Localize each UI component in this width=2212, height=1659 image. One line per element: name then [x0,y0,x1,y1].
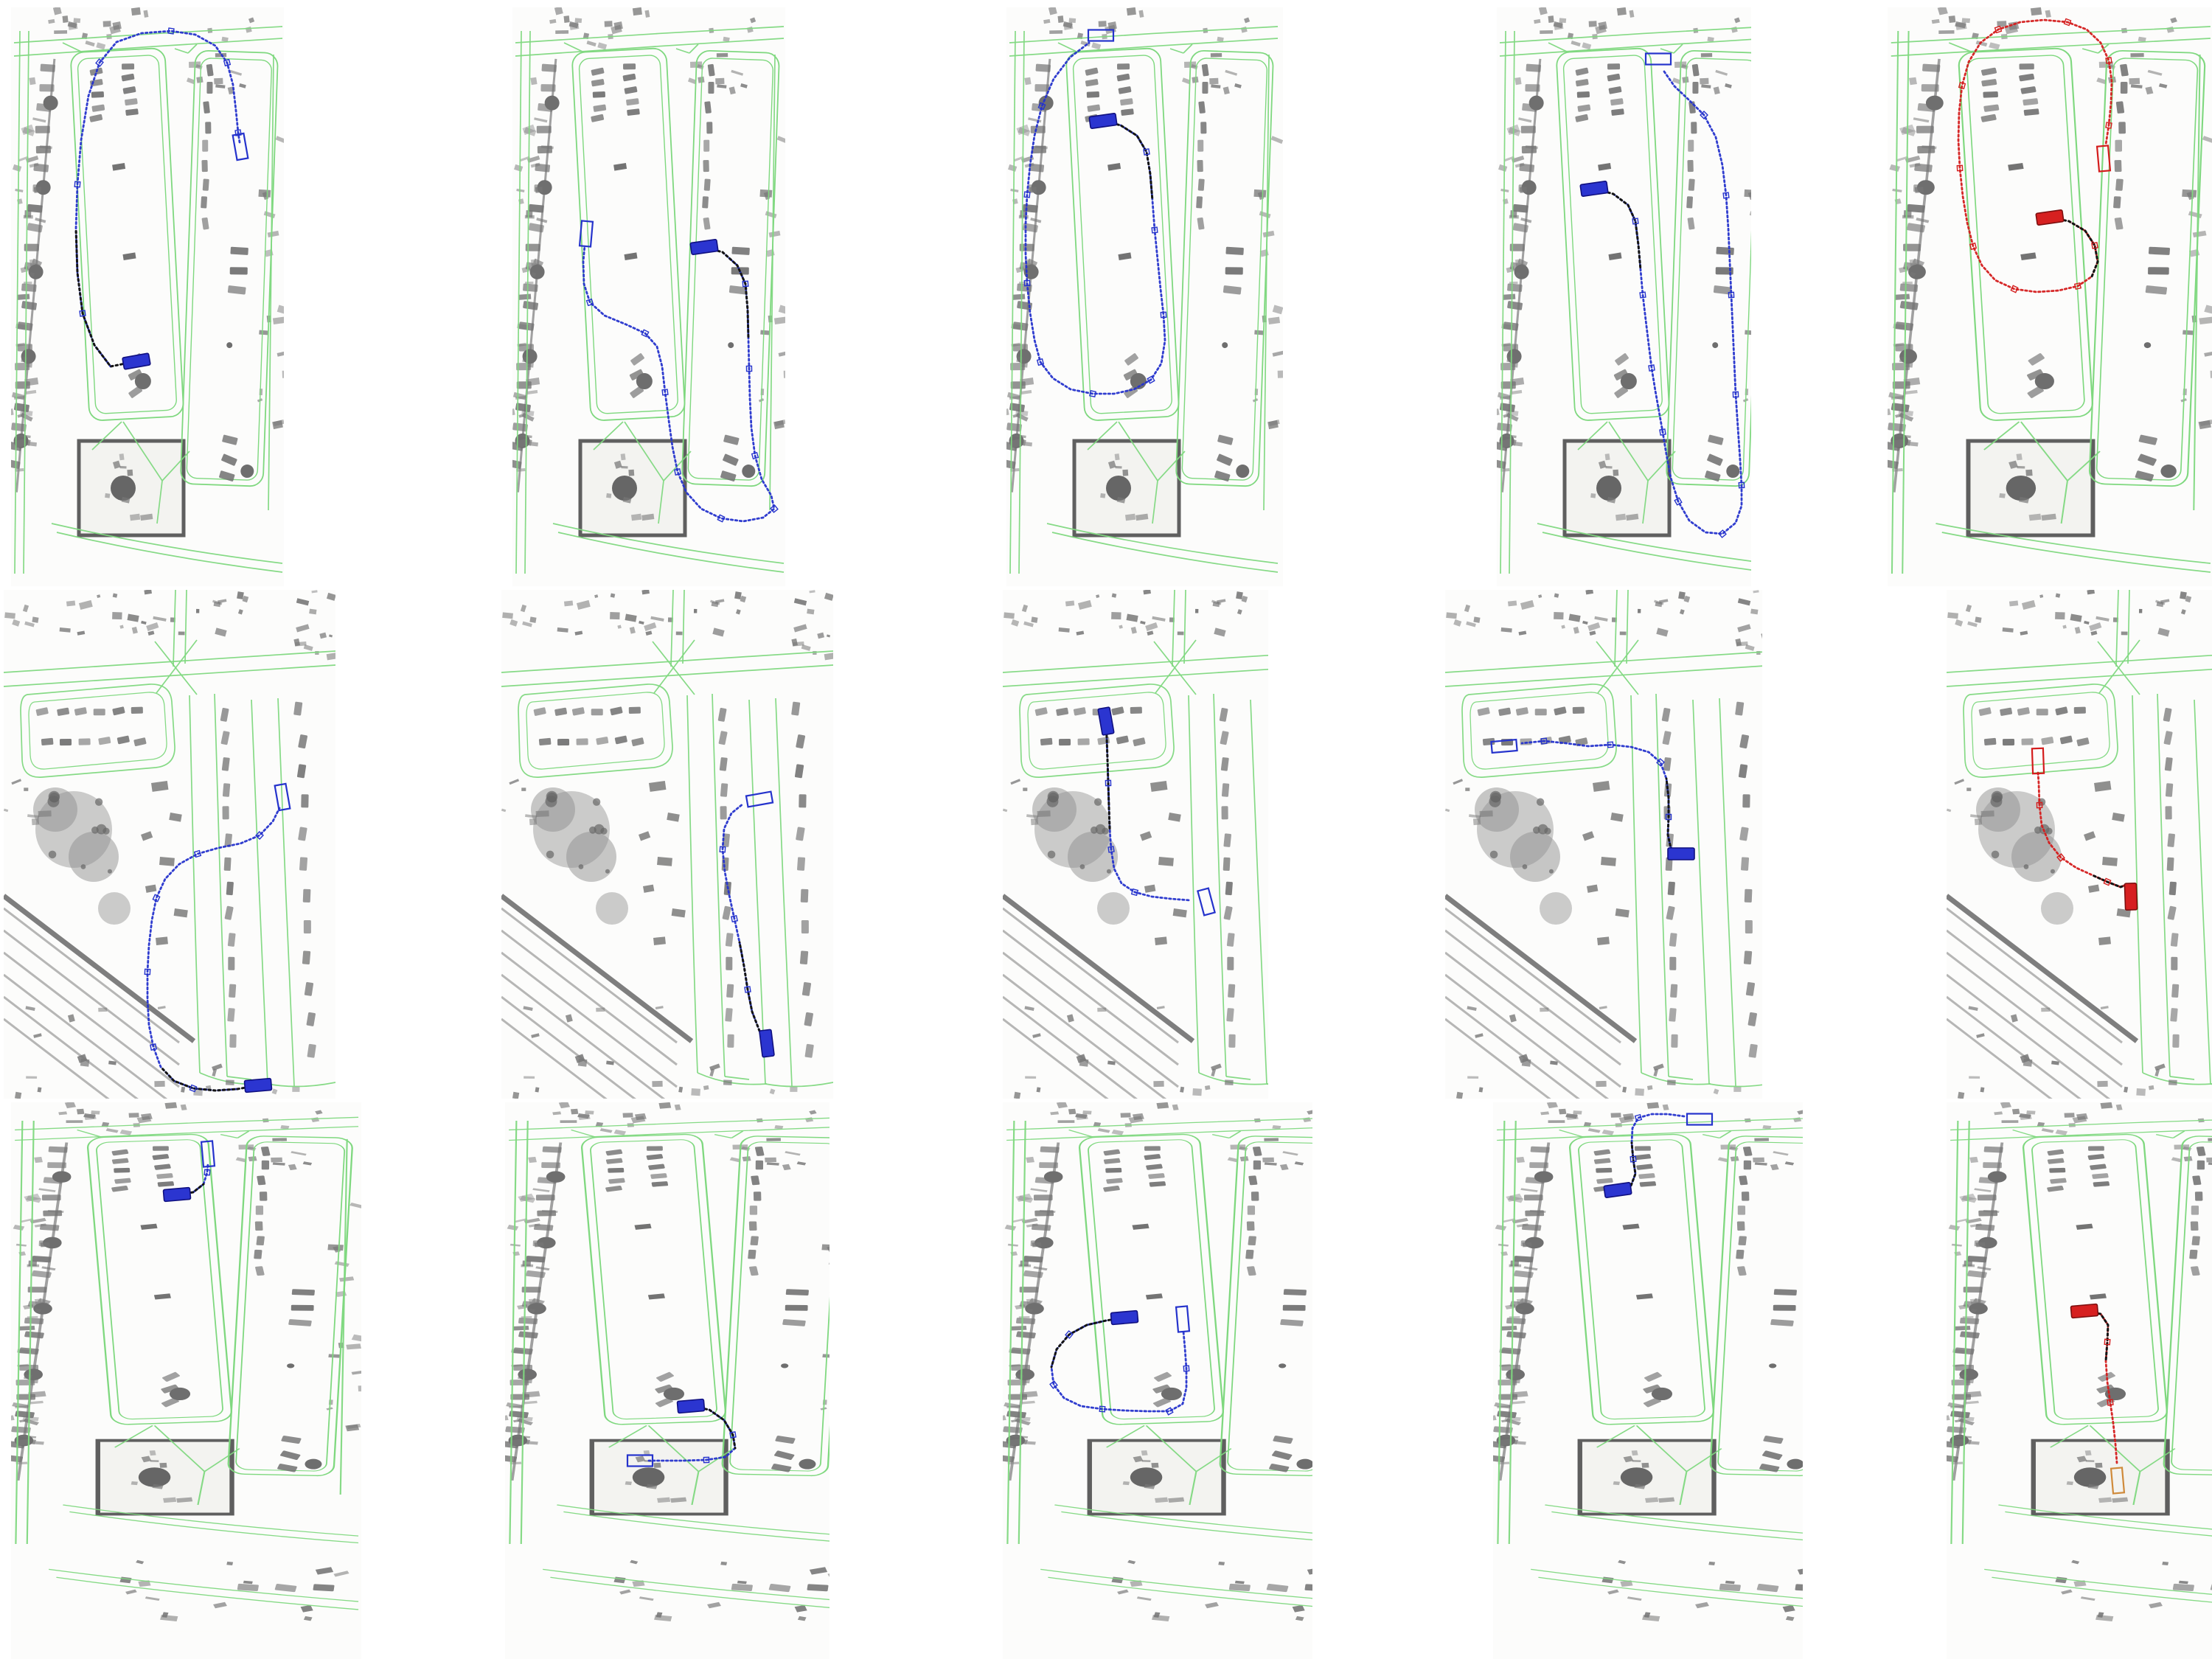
map-b-instance [501,589,836,1153]
map-a-instance [1928,1102,2212,1632]
map-a-instance [1475,1102,1851,1632]
map-panel-r3c4 [1475,1102,1851,1659]
figure-canvas [0,0,2212,1659]
map-panel-r3c1 [0,1102,369,1659]
vehicle-marker [2070,1304,2098,1318]
map-a-instance [1871,6,2212,686]
vehicle-marker [1110,1310,1138,1324]
map-a-instance [0,1102,369,1632]
vehicle-marker [759,1029,774,1057]
map-panel-r3c2 [487,1102,863,1659]
map-panel-r1c1 [0,6,291,686]
map-panel-r1c3 [992,6,1286,686]
vehicle-marker [1668,848,1694,860]
map-b-instance [1947,589,2212,1153]
map-panel-r1c2 [498,6,792,686]
map-panel-r2c3 [1003,589,1338,1153]
trajectory-figure [0,0,2212,1659]
vehicle-marker [2124,883,2137,911]
map-b-instance [1445,589,1780,1153]
map-b-instance [4,589,338,1153]
vehicle-marker [163,1187,190,1201]
map-b-instance [1003,589,1338,1153]
vehicle-marker [244,1078,271,1092]
map-panel-r3c3 [984,1102,1361,1659]
vehicle-marker [677,1399,704,1413]
map-a-instance [0,6,291,686]
map-panel-r2c4 [1445,589,1780,1153]
map-a-instance [487,1102,863,1632]
map-panel-r1c4 [1482,6,1776,686]
map-panel-r3c5 [1928,1102,2212,1659]
map-panel-r2c1 [4,589,338,1153]
map-panel-r1c5 [1871,6,2212,686]
map-panel-r2c5 [1947,589,2212,1153]
map-panel-r2c2 [501,589,836,1153]
map-a-instance [984,1102,1361,1632]
